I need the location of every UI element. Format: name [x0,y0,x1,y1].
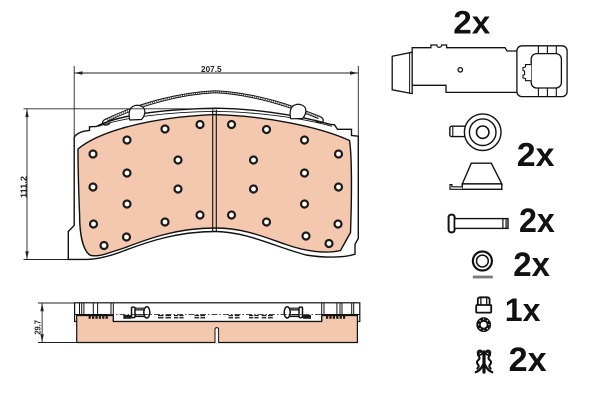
svg-text:2x: 2x [519,202,555,240]
svg-text:2x: 2x [513,246,550,284]
svg-text:207.5: 207.5 [201,65,222,74]
svg-text:2x: 2x [517,137,555,174]
svg-text:29.7: 29.7 [33,320,42,335]
svg-text:2x: 2x [509,341,547,379]
svg-text:1x: 1x [505,292,541,328]
svg-text:111.2: 111.2 [20,175,29,198]
svg-text:2x: 2x [453,5,490,41]
